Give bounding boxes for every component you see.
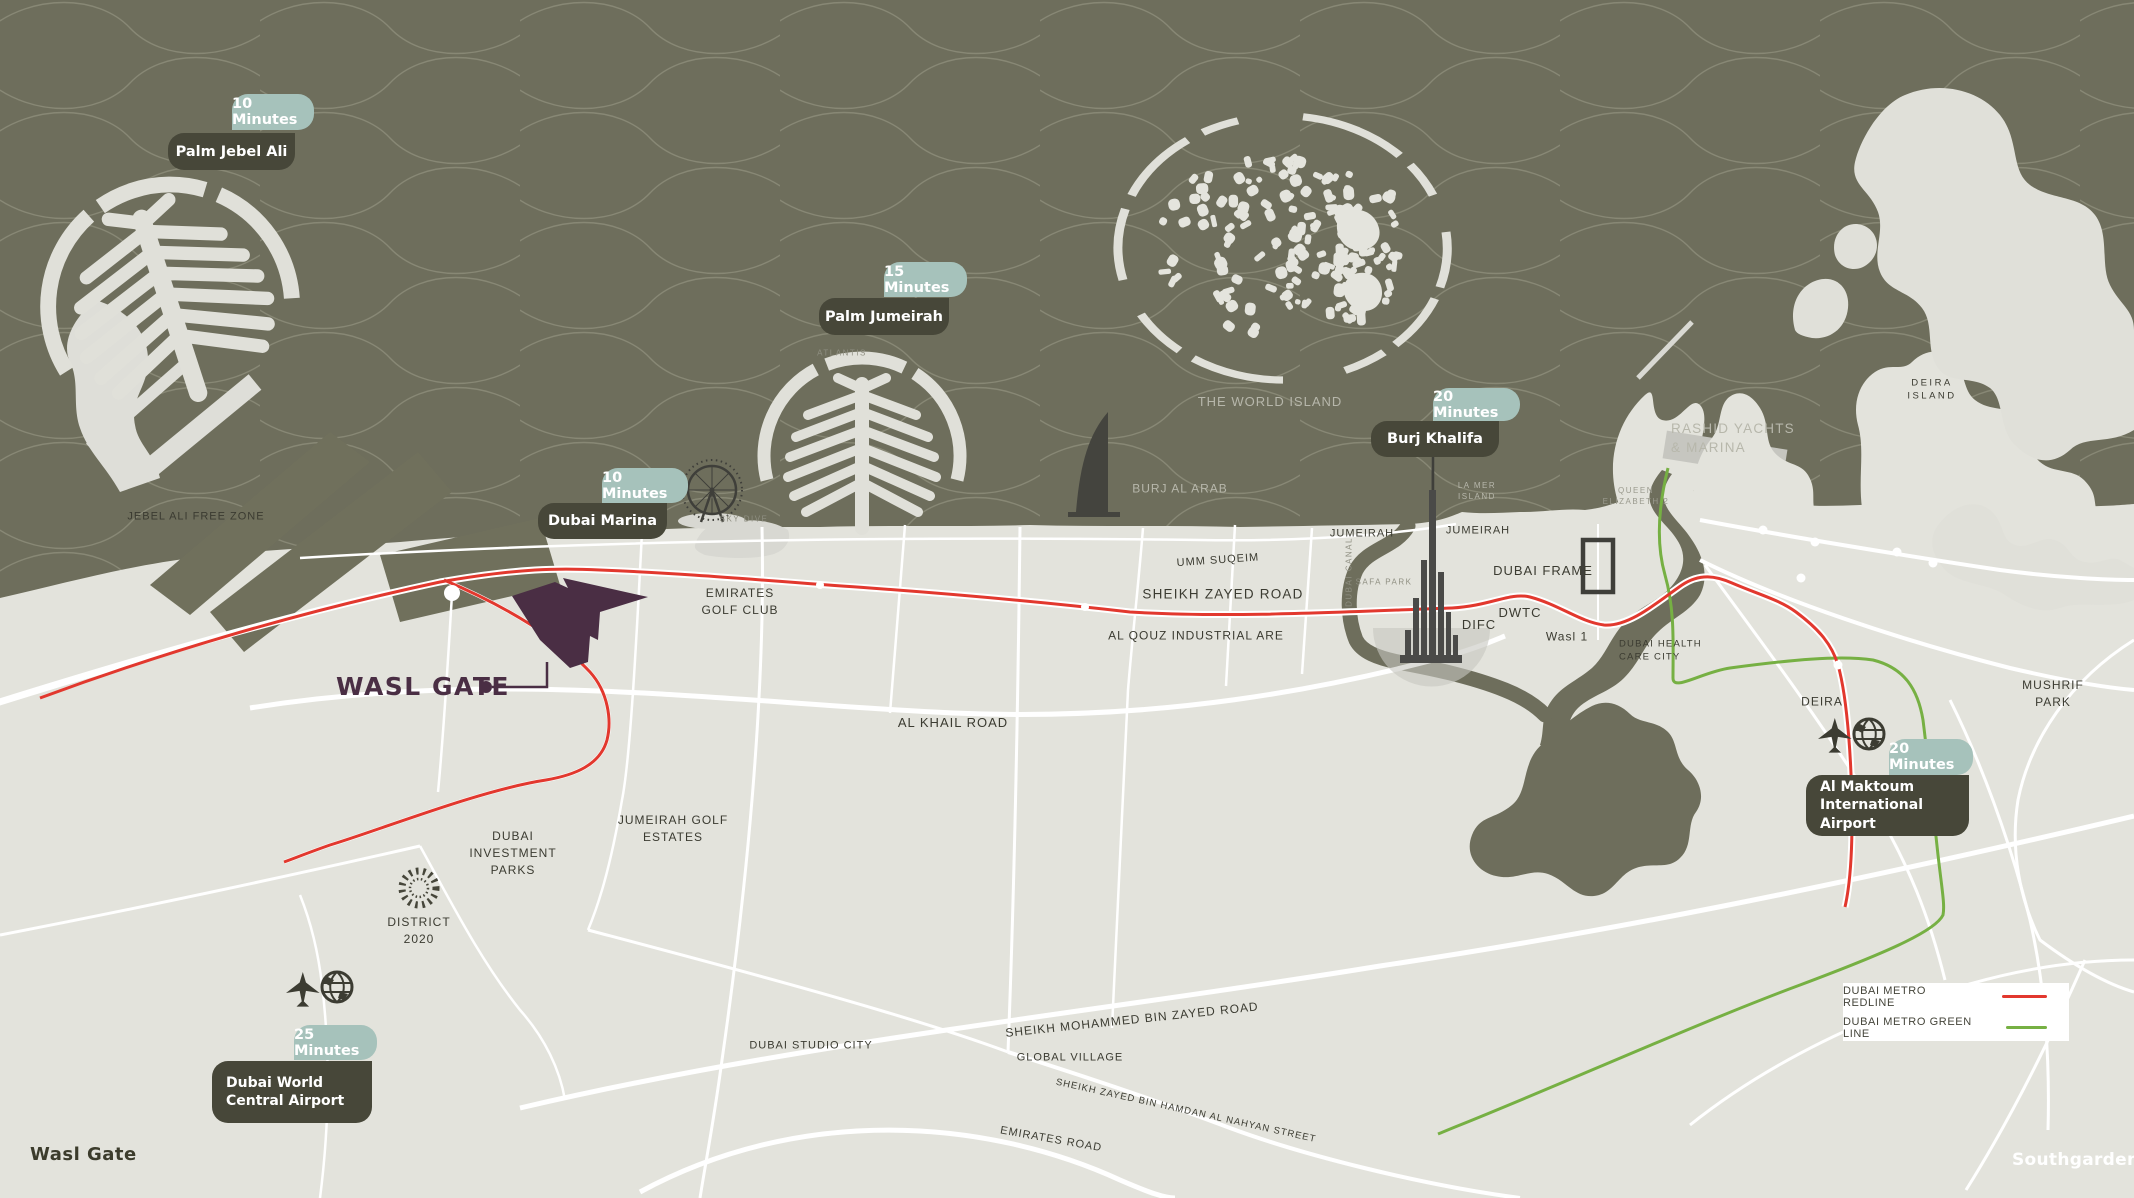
label-dubai-investment-parks: DUBAI INVESTMENT PARKS (469, 828, 556, 878)
label-sheikh-zayed-road: SHEIKH ZAYED ROAD (1142, 586, 1303, 605)
label-la-mer-island: LA MER ISLAND (1458, 480, 1496, 502)
footer-site-name: Wasl Gate (30, 1144, 137, 1165)
wasl-gate-location-map: JEBEL ALI FREE ZONE EMIRATES GOLF CLUB S… (0, 0, 2134, 1198)
label-al-khail-road: AL KHAIL ROAD (898, 714, 1008, 732)
label-dubai-canal: DUBAI CANAL (1343, 537, 1354, 607)
label-al-qouz-industrial: AL QOUZ INDUSTRIAL ARE (1108, 628, 1284, 645)
badge-palm-jumeirah: Palm Jumeirah (819, 298, 949, 335)
label-atlantis: ATLANTIS (817, 347, 867, 358)
badge-time-al-maktoum: 20 Minutes (1889, 739, 1973, 775)
label-difc: DIFC (1462, 616, 1496, 634)
badge-burj-khalifa: Burj Khalifa (1371, 421, 1499, 457)
badge-dwc-airport: Dubai World Central Airport (212, 1061, 372, 1123)
label-deira-island: DEIRA ISLAND (1907, 377, 1956, 404)
label-dubai-studio-city: DUBAI STUDIO CITY (749, 1038, 872, 1053)
label-safa-park: SAFA PARK (1356, 576, 1413, 587)
badge-time-palm-jebel-ali: 10 Minutes (232, 94, 314, 130)
badge-time-dubai-marina: 10 Minutes (602, 468, 688, 503)
label-district-2020: DISTRICT 2020 (387, 914, 450, 948)
label-deira: DEIRA (1801, 694, 1843, 711)
label-rashid-yachts-marina: RASHID YACHTS & MARINA (1671, 420, 1795, 458)
legend-row-greenline: DUBAI METRO GREEN LINE (1843, 1016, 2069, 1040)
label-dubai-health-care-city: DUBAI HEALTH CARE CITY (1619, 638, 1702, 665)
site-title: WASL GATE (336, 672, 510, 701)
label-the-world-island: THE WORLD ISLAND (1198, 393, 1343, 411)
label-burj-al-arab: BURJ AL ARAB (1132, 481, 1228, 498)
badge-time-palm-jumeirah: 15 Minutes (884, 262, 967, 297)
greenline-swatch (2006, 1026, 2047, 1030)
metro-legend: DUBAI METRO REDLINE DUBAI METRO GREEN LI… (1843, 983, 2069, 1041)
brand-logo: Southgarden (2012, 1150, 2134, 1170)
badge-palm-jebel-ali: Palm Jebel Ali (168, 133, 295, 170)
legend-label-greenline: DUBAI METRO GREEN LINE (1843, 1016, 1984, 1040)
badge-time-burj-khalifa: 20 Minutes (1433, 388, 1520, 421)
label-sky-dive: SKY DIVE (720, 513, 769, 524)
label-mushrif-park: MUSHRIF PARK (2013, 677, 2094, 711)
label-global-village: GLOBAL VILLAGE (1017, 1050, 1124, 1065)
label-jebel-ali-free-zone: JEBEL ALI FREE ZONE (127, 509, 264, 524)
legend-row-redline: DUBAI METRO REDLINE (1843, 985, 2069, 1009)
label-wasl-1: Wasl 1 (1546, 629, 1588, 646)
label-dubai-frame: DUBAI FRAME (1493, 562, 1593, 580)
label-jumeirah-east: JUMEIRAH (1446, 523, 1510, 538)
redline-swatch (2002, 995, 2047, 999)
badge-time-dwc: 25 Minutes (294, 1025, 377, 1060)
badge-al-maktoum-airport: Al Maktoum International Airport (1806, 775, 1969, 836)
badge-dubai-marina: Dubai Marina (538, 503, 667, 539)
legend-label-redline: DUBAI METRO REDLINE (1843, 985, 1980, 1009)
label-jumeirah-golf-estates: JUMEIRAH GOLF ESTATES (618, 812, 728, 846)
label-dwtc: DWTC (1499, 604, 1542, 622)
label-emirates-golf-club: EMIRATES GOLF CLUB (701, 585, 778, 619)
label-queen-elizabeth-2: QUEEN ELIZABETH 2 (1603, 485, 1670, 507)
label-jumeirah-west: JUMEIRAH (1330, 526, 1394, 541)
